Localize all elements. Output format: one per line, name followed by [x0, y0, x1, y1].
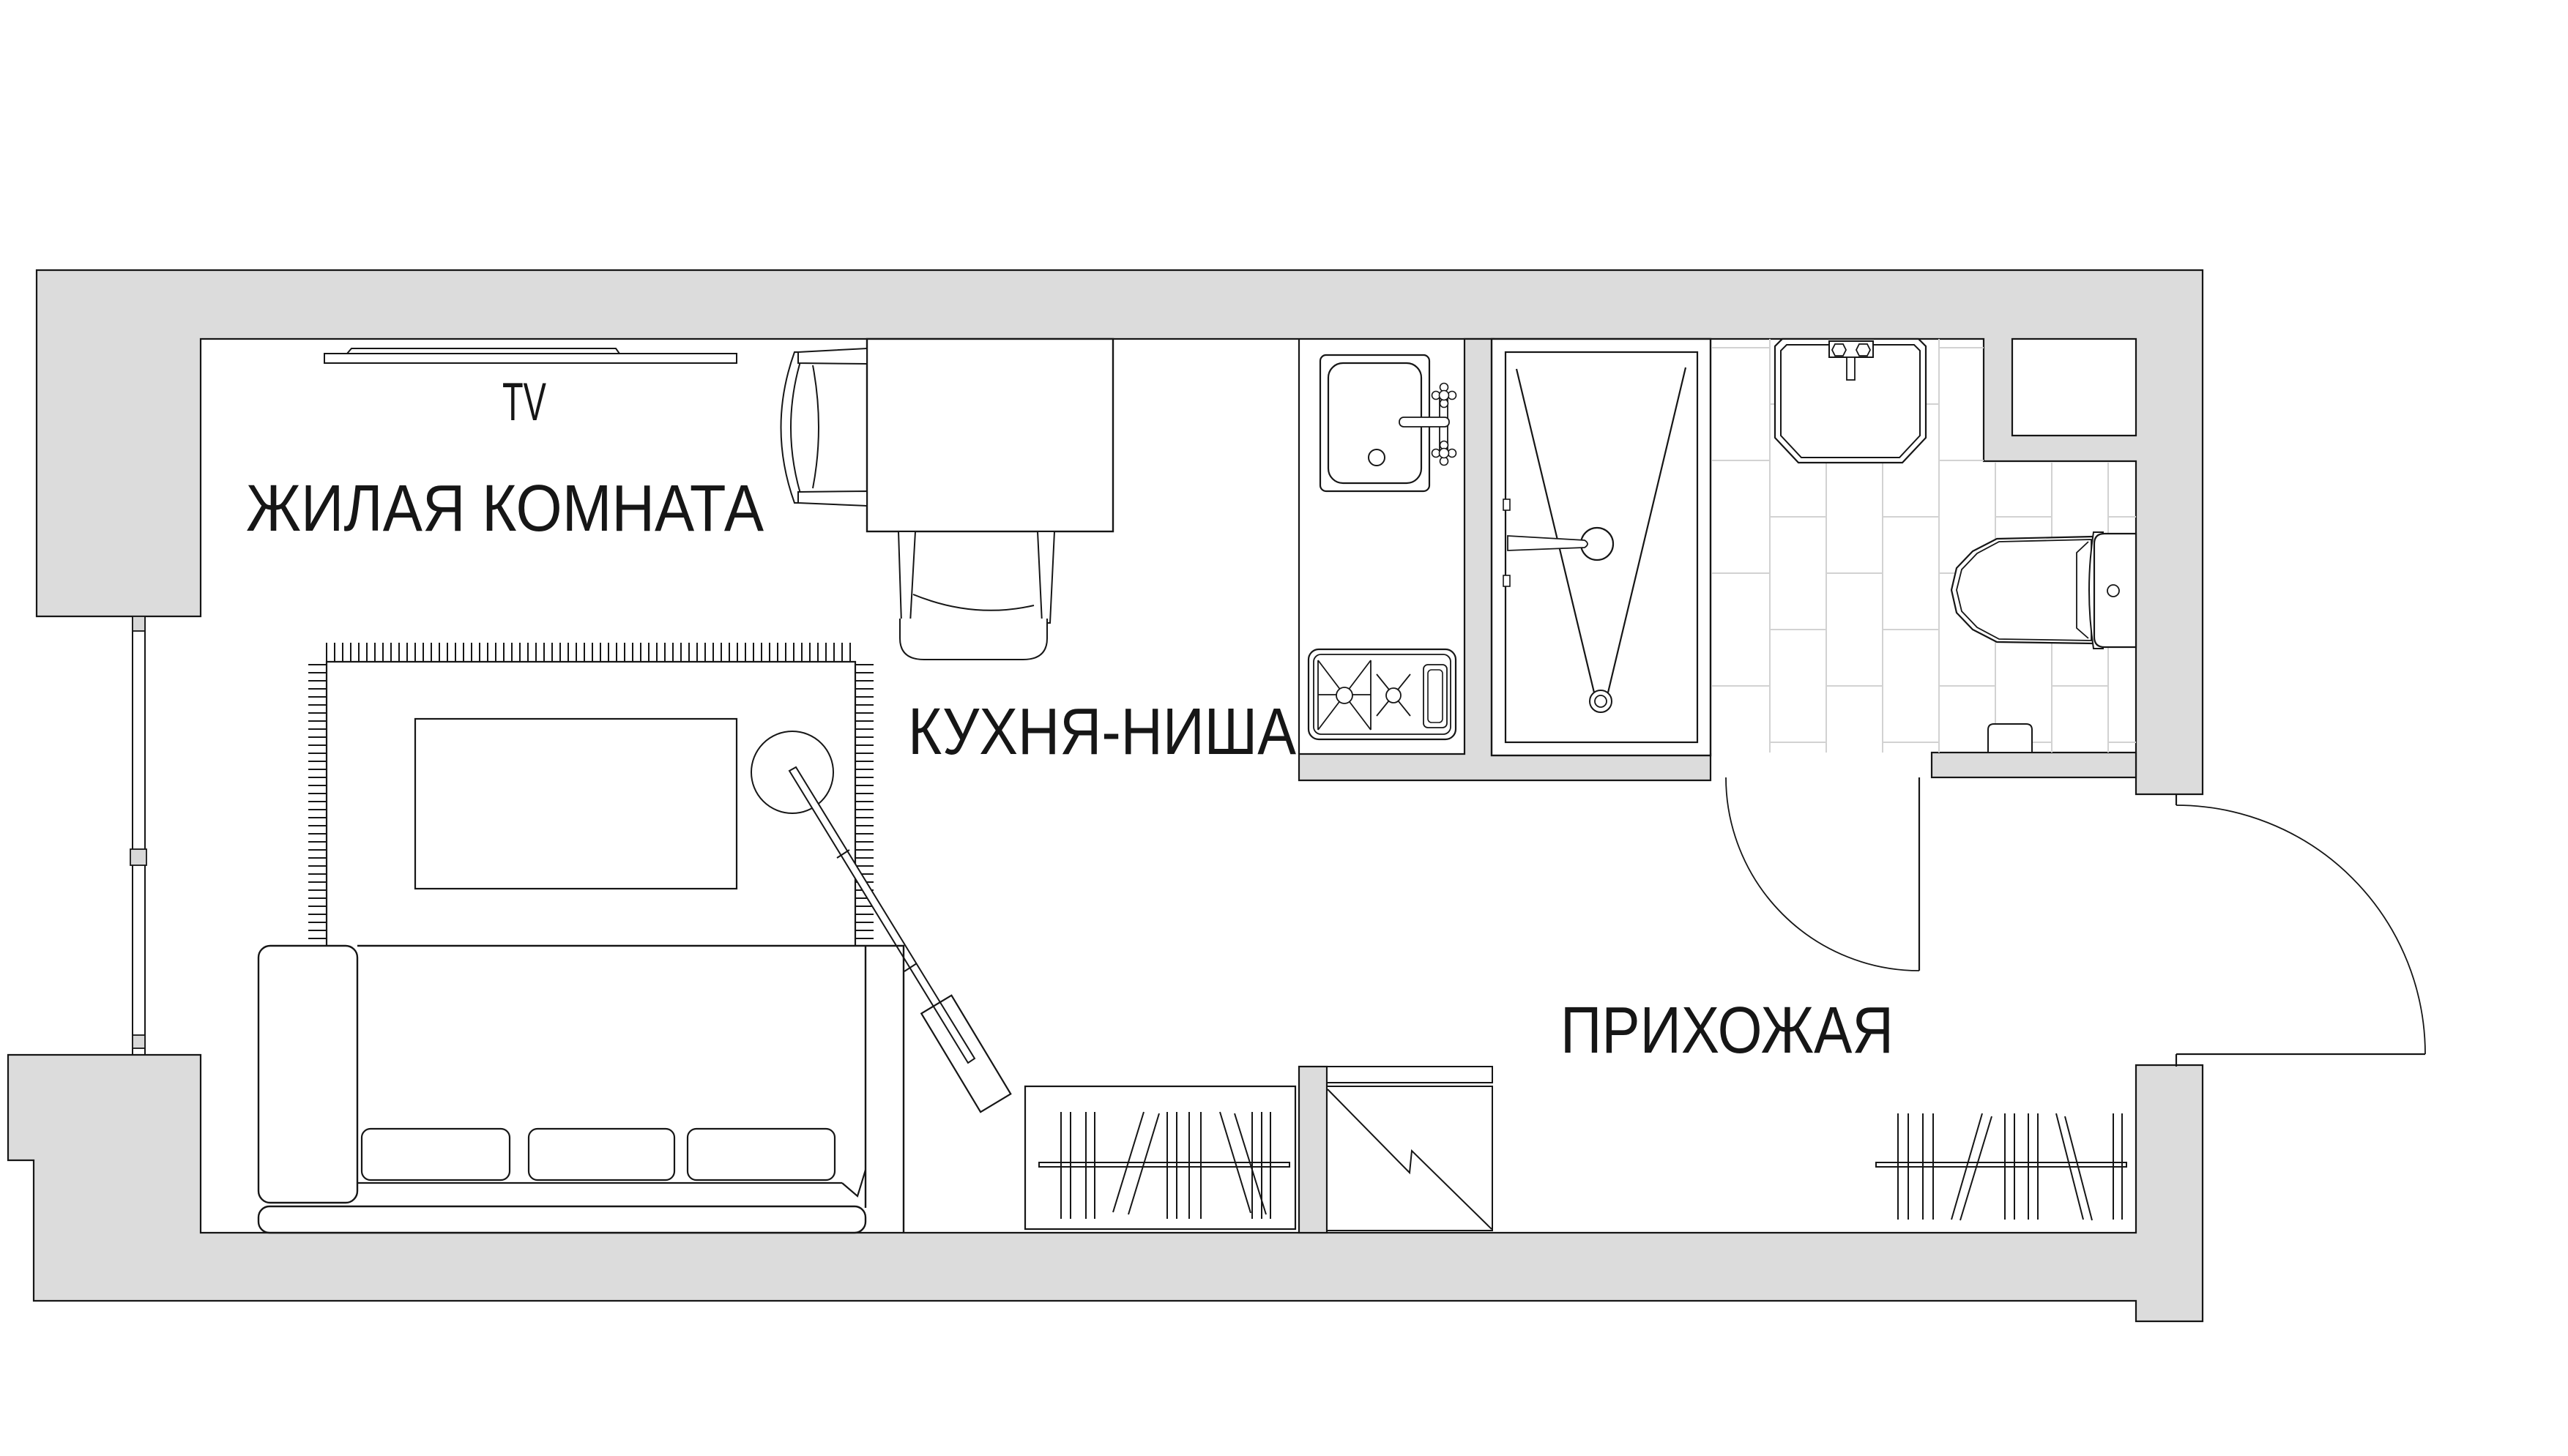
- svg-text:ЖИЛАЯ КОМНАТА: ЖИЛАЯ КОМНАТА: [246, 472, 764, 545]
- svg-text:ПРИХОЖАЯ: ПРИХОЖАЯ: [1560, 994, 1894, 1067]
- svg-text:TV: TV: [502, 373, 546, 432]
- svg-text:КУХНЯ-НИША: КУХНЯ-НИША: [908, 695, 1296, 769]
